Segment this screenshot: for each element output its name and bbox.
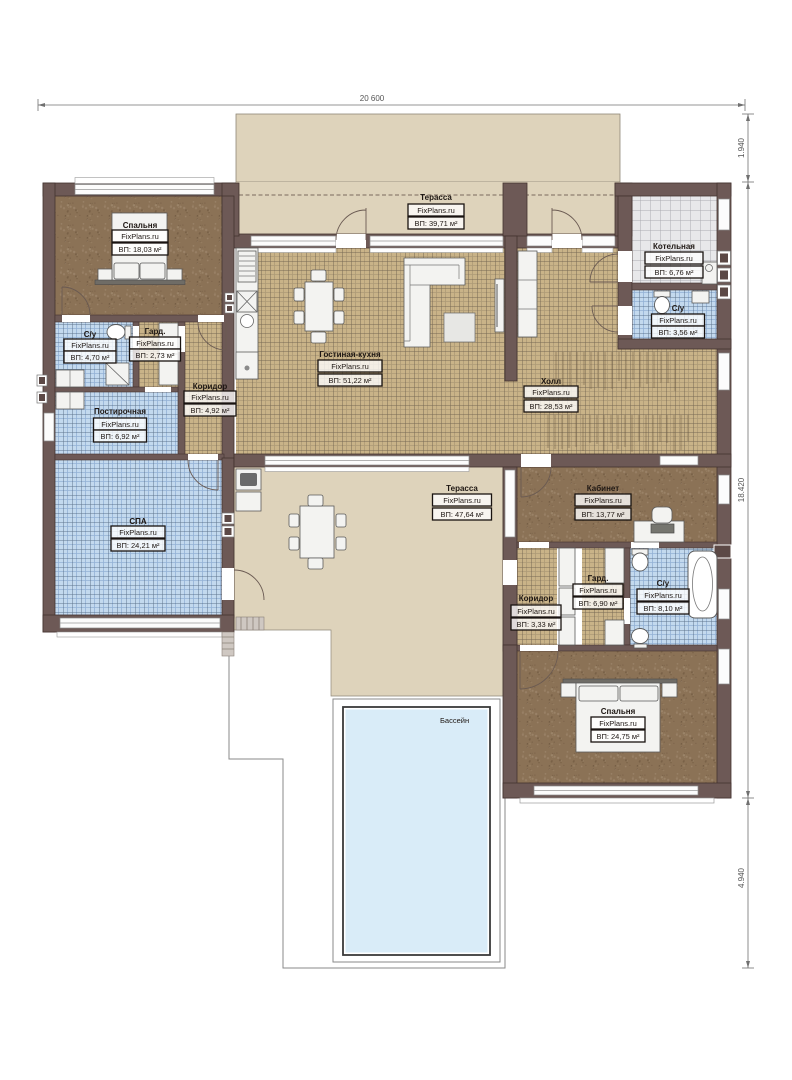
svg-text:FixPlans.ru: FixPlans.ru — [101, 420, 139, 429]
svg-text:ВП: 24,21 м²: ВП: 24,21 м² — [116, 541, 160, 550]
svg-text:Спальня: Спальня — [601, 707, 636, 716]
svg-text:С/у: С/у — [672, 304, 685, 313]
svg-text:Коридор: Коридор — [193, 382, 228, 391]
svg-text:СПА: СПА — [129, 517, 147, 526]
svg-text:ВП: 4,92 м²: ВП: 4,92 м² — [191, 406, 230, 415]
svg-text:FixPlans.ru: FixPlans.ru — [331, 362, 369, 371]
svg-text:Гард.: Гард. — [145, 327, 166, 336]
svg-text:FixPlans.ru: FixPlans.ru — [119, 528, 157, 537]
svg-text:FixPlans.ru: FixPlans.ru — [644, 591, 682, 600]
svg-text:18.420: 18.420 — [737, 477, 746, 502]
svg-text:ВП: 6,90 м²: ВП: 6,90 м² — [579, 599, 618, 608]
svg-text:FixPlans.ru: FixPlans.ru — [71, 341, 109, 350]
svg-text:Котельная: Котельная — [653, 242, 695, 251]
svg-text:Терасса: Терасса — [446, 484, 478, 493]
svg-text:20 600: 20 600 — [360, 94, 385, 103]
svg-text:ВП: 3,33 м²: ВП: 3,33 м² — [517, 620, 556, 629]
svg-text:1.940: 1.940 — [737, 137, 746, 158]
svg-text:ВП: 39,71 м²: ВП: 39,71 м² — [414, 219, 458, 228]
svg-text:FixPlans.ru: FixPlans.ru — [579, 586, 617, 595]
svg-text:ВП: 18,03 м²: ВП: 18,03 м² — [118, 245, 162, 254]
svg-text:FixPlans.ru: FixPlans.ru — [517, 607, 555, 616]
svg-text:FixPlans.ru: FixPlans.ru — [584, 496, 622, 505]
svg-text:С/у: С/у — [84, 330, 97, 339]
svg-text:FixPlans.ru: FixPlans.ru — [655, 254, 693, 263]
svg-text:FixPlans.ru: FixPlans.ru — [599, 719, 637, 728]
svg-text:ВП: 6,92 м²: ВП: 6,92 м² — [101, 432, 140, 441]
svg-text:ВП: 3,56 м²: ВП: 3,56 м² — [659, 328, 698, 337]
svg-text:Спальня: Спальня — [123, 221, 158, 230]
svg-text:Гостиная-кухня: Гостиная-кухня — [319, 350, 381, 359]
svg-text:ВП: 13,77 м²: ВП: 13,77 м² — [581, 510, 625, 519]
svg-text:Бассейн: Бассейн — [440, 716, 469, 725]
svg-text:Терасса: Терасса — [420, 193, 452, 202]
svg-text:Коридор: Коридор — [519, 594, 554, 603]
svg-text:ВП: 51,22 м²: ВП: 51,22 м² — [328, 376, 372, 385]
svg-text:ВП: 28,53 м²: ВП: 28,53 м² — [529, 402, 573, 411]
svg-text:FixPlans.ru: FixPlans.ru — [443, 496, 481, 505]
svg-text:ВП: 4,70 м²: ВП: 4,70 м² — [71, 353, 110, 362]
svg-text:Постирочная: Постирочная — [94, 407, 146, 416]
svg-text:С/у: С/у — [657, 579, 670, 588]
svg-text:FixPlans.ru: FixPlans.ru — [136, 339, 174, 348]
svg-text:ВП: 8,10 м²: ВП: 8,10 м² — [644, 604, 683, 613]
svg-text:ВП: 24,75 м²: ВП: 24,75 м² — [596, 732, 640, 741]
svg-text:FixPlans.ru: FixPlans.ru — [659, 316, 697, 325]
svg-text:Гард.: Гард. — [588, 574, 609, 583]
svg-text:ВП: 47,64 м²: ВП: 47,64 м² — [440, 510, 484, 519]
svg-text:FixPlans.ru: FixPlans.ru — [532, 388, 570, 397]
svg-text:Холл: Холл — [541, 377, 561, 386]
svg-text:Кабинет: Кабинет — [587, 484, 619, 493]
svg-text:FixPlans.ru: FixPlans.ru — [121, 232, 159, 241]
svg-text:ВП: 2,73 м²: ВП: 2,73 м² — [136, 351, 175, 360]
svg-text:4.940: 4.940 — [737, 867, 746, 888]
svg-text:ВП: 6,76 м²: ВП: 6,76 м² — [655, 268, 694, 277]
svg-text:FixPlans.ru: FixPlans.ru — [191, 393, 229, 402]
svg-text:FixPlans.ru: FixPlans.ru — [417, 206, 455, 215]
